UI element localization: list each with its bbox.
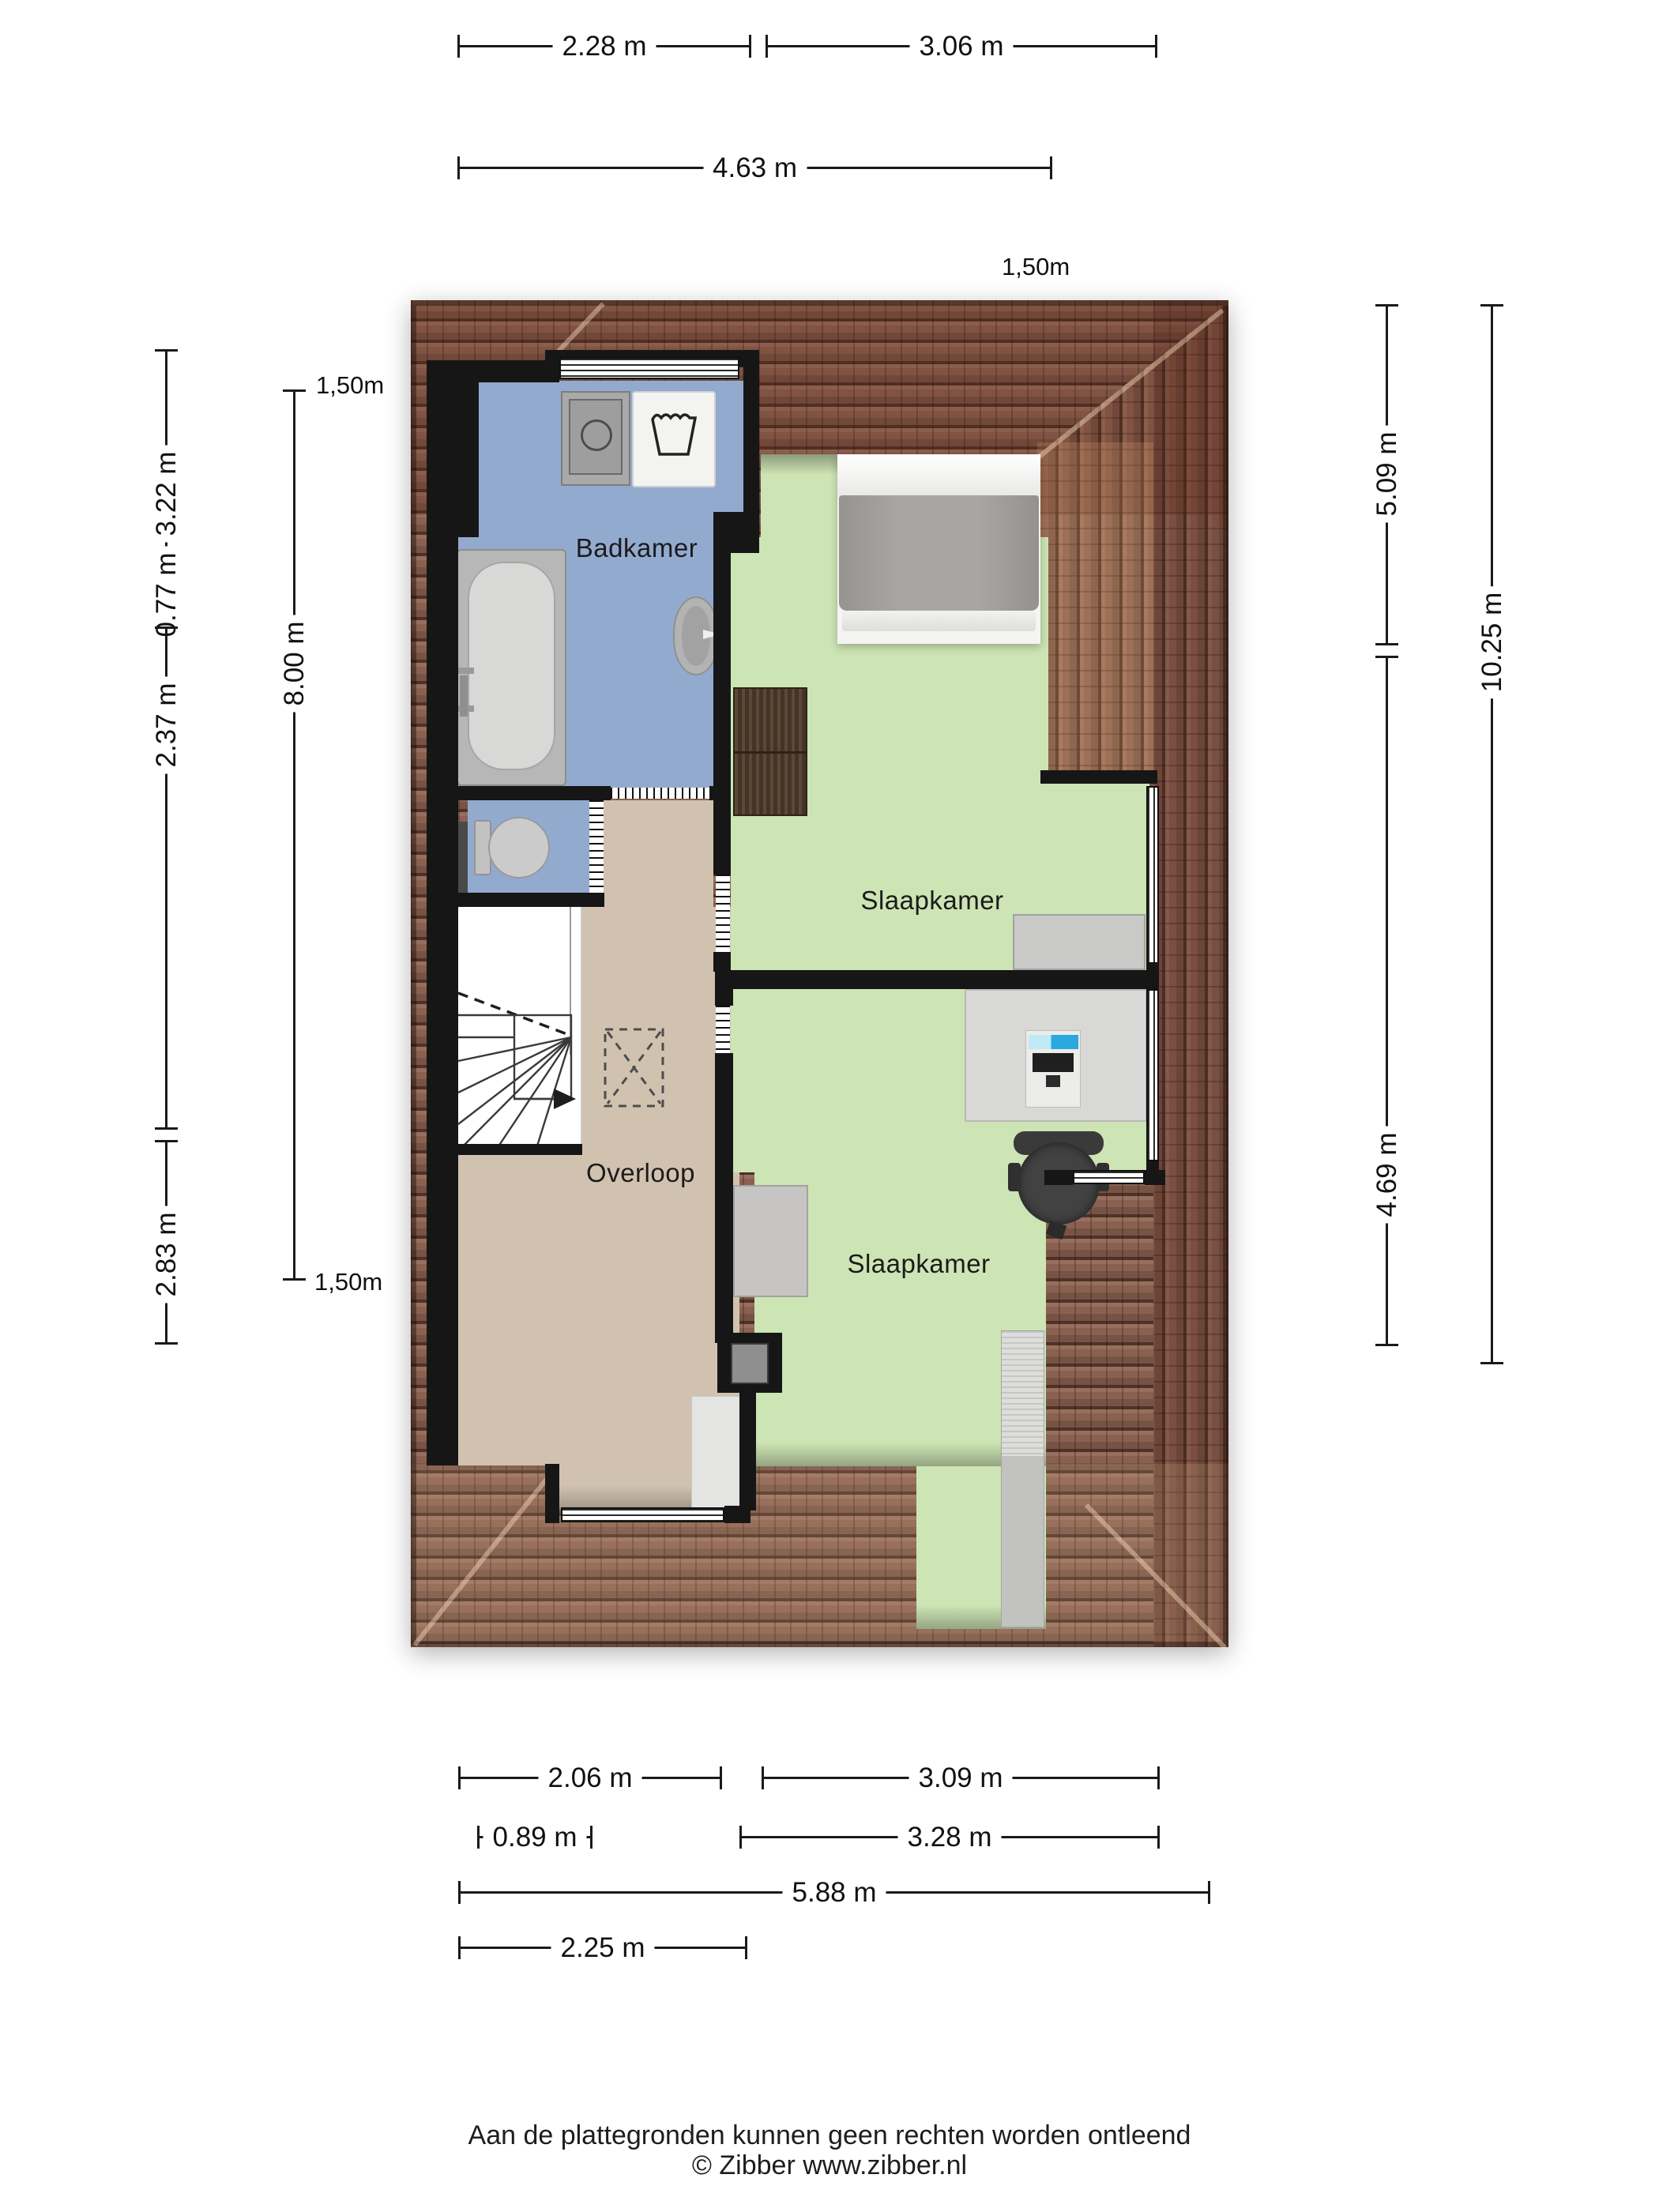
bathtub-faucet-icon — [460, 675, 468, 717]
room-label-bedroom2: Slaapkamer — [847, 1249, 990, 1279]
dimension-line: 5.88 m — [458, 1881, 1210, 1904]
computer-monitor-icon — [1029, 1035, 1078, 1049]
dimension-line: 5.09 m — [1375, 304, 1398, 645]
dimension-label: 2.25 m — [551, 1931, 655, 1966]
wall — [709, 786, 731, 800]
dimension-label: 4.63 m — [703, 151, 807, 186]
wall — [724, 1506, 750, 1523]
footer-disclaimer: Aan de plattegronden kunnen geen rechten… — [0, 2120, 1659, 2151]
washing-machine-door — [569, 399, 623, 475]
headroom-annotation: 1,50m — [316, 371, 384, 400]
dimension-label: 2.37 m — [149, 677, 184, 774]
bathtub — [457, 549, 566, 786]
room-label-bedroom1: Slaapkamer — [860, 886, 1003, 916]
wall — [427, 360, 559, 382]
washing-machine-drum-icon — [581, 419, 612, 451]
dimension-line: 2.28 m — [457, 35, 751, 58]
dimension-label: 5.88 m — [783, 1875, 886, 1910]
window — [561, 1507, 724, 1522]
office-chair-armrest — [1008, 1163, 1021, 1191]
wall — [713, 952, 731, 972]
attic-hatch — [603, 1027, 665, 1108]
closet — [1001, 1330, 1044, 1627]
dimension-label: 4.69 m — [1370, 1127, 1405, 1224]
wall — [427, 365, 479, 537]
bed-pillow — [837, 454, 1040, 497]
landing-floor — [589, 800, 713, 911]
window — [1073, 1170, 1145, 1184]
laundry-tub-icon — [632, 391, 716, 487]
room-label-landing: Overloop — [586, 1158, 695, 1188]
dimension-line: 10.25 m — [1480, 304, 1503, 1364]
dimension-line: 4.69 m — [1375, 656, 1398, 1346]
wall — [454, 1144, 582, 1155]
wall — [545, 1464, 559, 1523]
bathtub-basin — [468, 562, 555, 770]
door-opening — [716, 1006, 730, 1053]
dimension-label: 10.25 m — [1475, 586, 1510, 698]
headroom-annotation: 1,50m — [1002, 253, 1070, 281]
wall — [427, 786, 611, 800]
door-opening — [589, 800, 604, 893]
wardrobe — [733, 1185, 808, 1297]
wardrobe-divider — [735, 751, 806, 754]
mat — [691, 1396, 741, 1509]
door-opening — [611, 788, 709, 799]
dimension-line: 2.83 m — [155, 1140, 178, 1345]
wall — [1044, 1170, 1073, 1185]
wall — [1040, 770, 1157, 784]
wall — [715, 970, 1157, 989]
dimension-label: 2.06 m — [539, 1761, 642, 1796]
dimension-label: 3.06 m — [910, 29, 1014, 64]
duct — [458, 822, 468, 893]
wall — [713, 800, 731, 875]
dimension-label: 2.83 m — [149, 1206, 184, 1303]
washbasin — [673, 596, 719, 675]
stairs — [456, 905, 582, 1155]
chimney-flue — [731, 1343, 769, 1384]
door-opening — [716, 875, 730, 952]
wall — [715, 1053, 733, 1343]
dimension-line: 2.06 m — [458, 1766, 722, 1789]
wall — [1145, 1170, 1165, 1185]
window — [1146, 989, 1159, 1161]
laundry-tub-glyph — [634, 393, 714, 486]
floorplan-page: Badkamer Slaapkamer Slaapkamer Overloop … — [0, 0, 1659, 2212]
keyboard-icon — [1033, 1053, 1074, 1072]
room-label-bathroom: Badkamer — [576, 533, 698, 563]
dimension-label: 0.89 m — [483, 1820, 587, 1855]
dimension-line: 4.63 m — [457, 156, 1052, 179]
bed-duvet — [839, 495, 1039, 611]
bed-foot-sheet — [842, 611, 1036, 631]
closet-ribbed-top — [1002, 1331, 1044, 1456]
dimension-label: 3.28 m — [898, 1820, 1002, 1855]
dimension-line: 2.25 m — [458, 1936, 747, 1959]
wall — [739, 1393, 756, 1510]
dimension-label: 8.00 m — [277, 615, 312, 713]
dimension-line: 3.22 m — [155, 349, 178, 561]
dimension-line: 0.89 m — [477, 1826, 592, 1849]
dimension-line: 3.28 m — [739, 1826, 1160, 1849]
wall — [455, 893, 604, 907]
window — [1146, 786, 1159, 964]
dimension-label: 3.09 m — [909, 1761, 1013, 1796]
toilet-bowl — [488, 817, 550, 878]
dimension-label: 3.22 m — [149, 446, 184, 543]
double-bed — [837, 454, 1040, 644]
stairs-glyph — [456, 905, 582, 1155]
computer-mouse-icon — [1046, 1075, 1060, 1087]
dimension-line: 3.09 m — [762, 1766, 1160, 1789]
washing-machine-icon — [561, 391, 630, 486]
wardrobe — [733, 687, 807, 816]
dimension-line: 0.77 m — [155, 561, 178, 626]
dimension-line: 3.06 m — [766, 35, 1157, 58]
headroom-annotation: 1,50m — [314, 1268, 382, 1296]
attic-hatch-glyph — [603, 1027, 665, 1108]
dimension-line: 2.37 m — [155, 626, 178, 1130]
dresser — [1013, 914, 1145, 970]
dimension-line: 8.00 m — [283, 389, 306, 1281]
footer-copyright: © Zibber www.zibber.nl — [0, 2150, 1659, 2181]
dimension-label: 2.28 m — [553, 29, 656, 64]
wall — [713, 521, 731, 802]
wall — [743, 350, 759, 523]
dimension-label: 5.09 m — [1370, 426, 1405, 523]
computer — [1025, 1030, 1081, 1108]
wall — [715, 989, 733, 1006]
window — [559, 357, 739, 379]
